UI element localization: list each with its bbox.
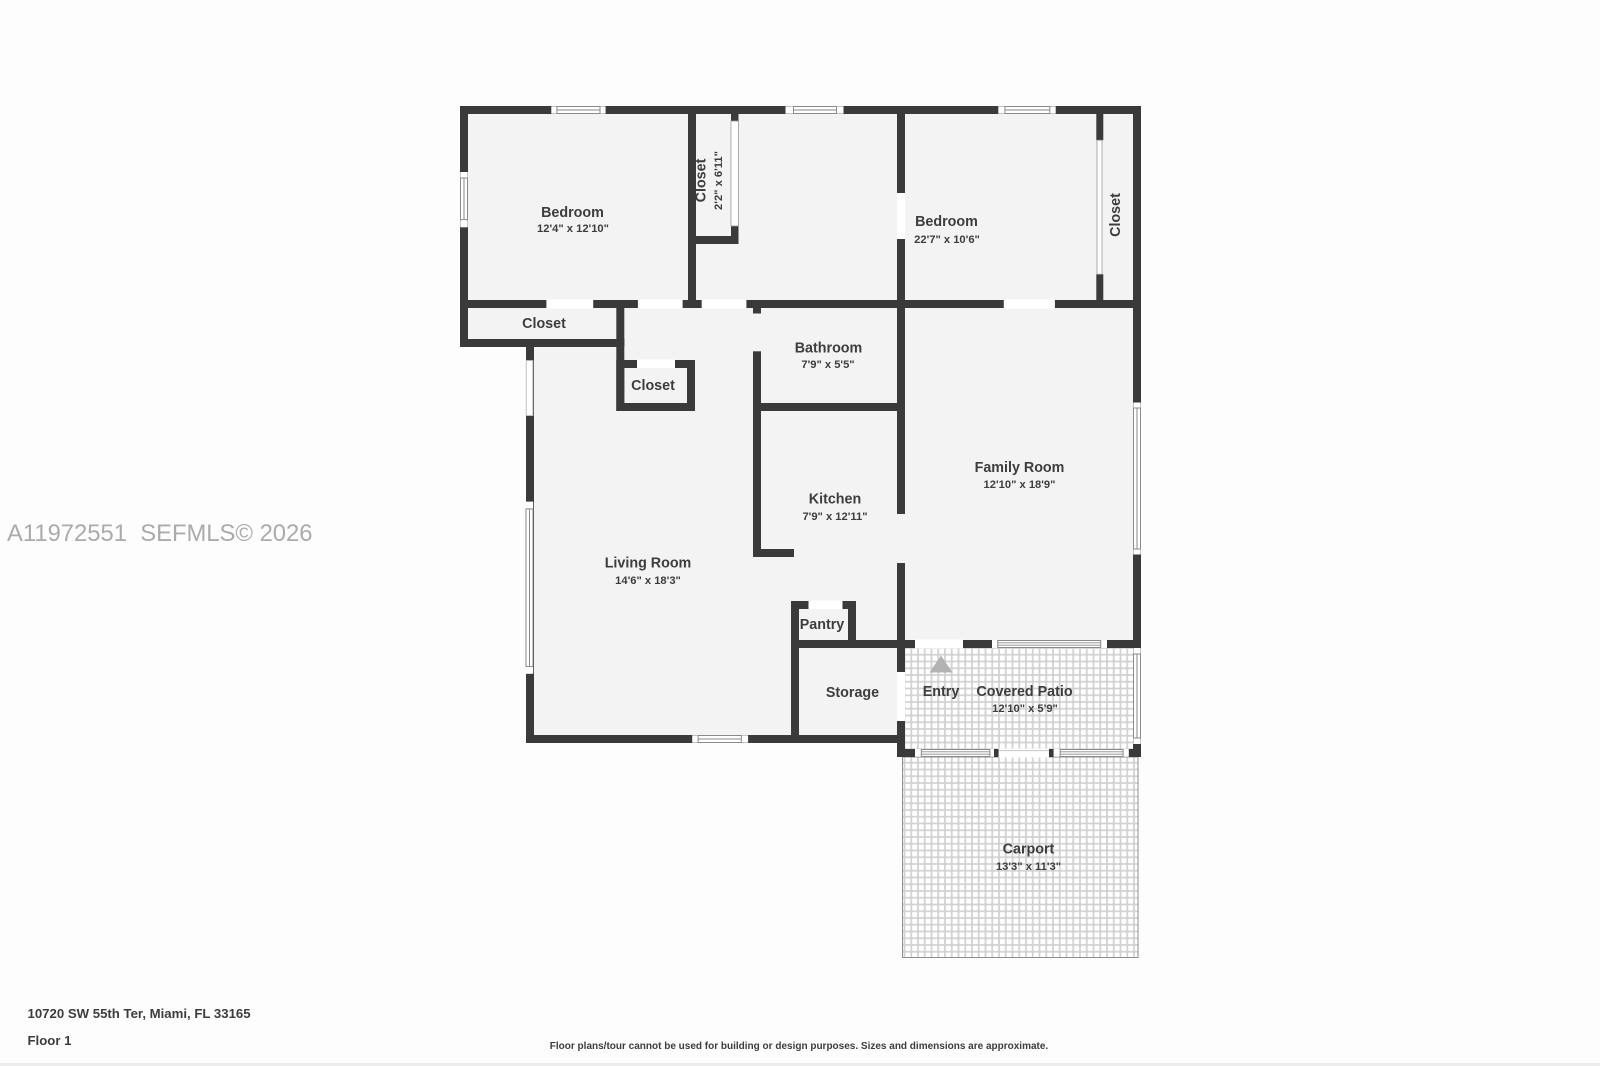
svg-text:Closet: Closet bbox=[631, 378, 675, 394]
svg-text:Bedroom: Bedroom bbox=[915, 214, 978, 230]
svg-text:12'10" x 18'9": 12'10" x 18'9" bbox=[984, 479, 1056, 491]
svg-text:Family Room: Family Room bbox=[975, 460, 1065, 476]
svg-text:Floor plans/tour cannot be use: Floor plans/tour cannot be used for buil… bbox=[550, 1041, 1049, 1052]
svg-text:Living Room: Living Room bbox=[605, 556, 692, 572]
svg-text:Kitchen: Kitchen bbox=[809, 492, 861, 508]
svg-text:7'9" x 5'5": 7'9" x 5'5" bbox=[801, 359, 854, 371]
svg-text:10720 SW 55th Ter, Miami, FL 3: 10720 SW 55th Ter, Miami, FL 33165 bbox=[28, 1006, 251, 1021]
svg-text:Pantry: Pantry bbox=[800, 617, 845, 633]
svg-text:22'7" x 10'6": 22'7" x 10'6" bbox=[914, 234, 980, 246]
svg-text:Closet: Closet bbox=[522, 316, 566, 332]
svg-text:2'2" x 6'11": 2'2" x 6'11" bbox=[713, 151, 725, 210]
svg-text:7'9" x 12'11": 7'9" x 12'11" bbox=[802, 511, 867, 523]
svg-text:12'4" x 12'10": 12'4" x 12'10" bbox=[537, 223, 609, 235]
svg-text:Bathroom: Bathroom bbox=[795, 341, 863, 357]
svg-text:Carport: Carport bbox=[1003, 842, 1055, 858]
svg-text:14'6" x 18'3": 14'6" x 18'3" bbox=[615, 575, 681, 587]
svg-text:Bedroom: Bedroom bbox=[541, 205, 604, 221]
svg-text:13'3" x 11'3": 13'3" x 11'3" bbox=[996, 861, 1061, 873]
svg-text:Covered Patio: Covered Patio bbox=[976, 684, 1072, 700]
svg-text:A11972551 SEFMLS© 2026: A11972551 SEFMLS© 2026 bbox=[7, 520, 313, 547]
svg-text:Floor 1: Floor 1 bbox=[28, 1033, 72, 1048]
svg-text:Closet: Closet bbox=[1108, 193, 1124, 237]
svg-text:Closet: Closet bbox=[694, 158, 710, 202]
svg-text:Storage: Storage bbox=[826, 685, 879, 701]
svg-text:Entry: Entry bbox=[923, 684, 960, 700]
svg-text:12'10" x 5'9": 12'10" x 5'9" bbox=[992, 703, 1058, 715]
